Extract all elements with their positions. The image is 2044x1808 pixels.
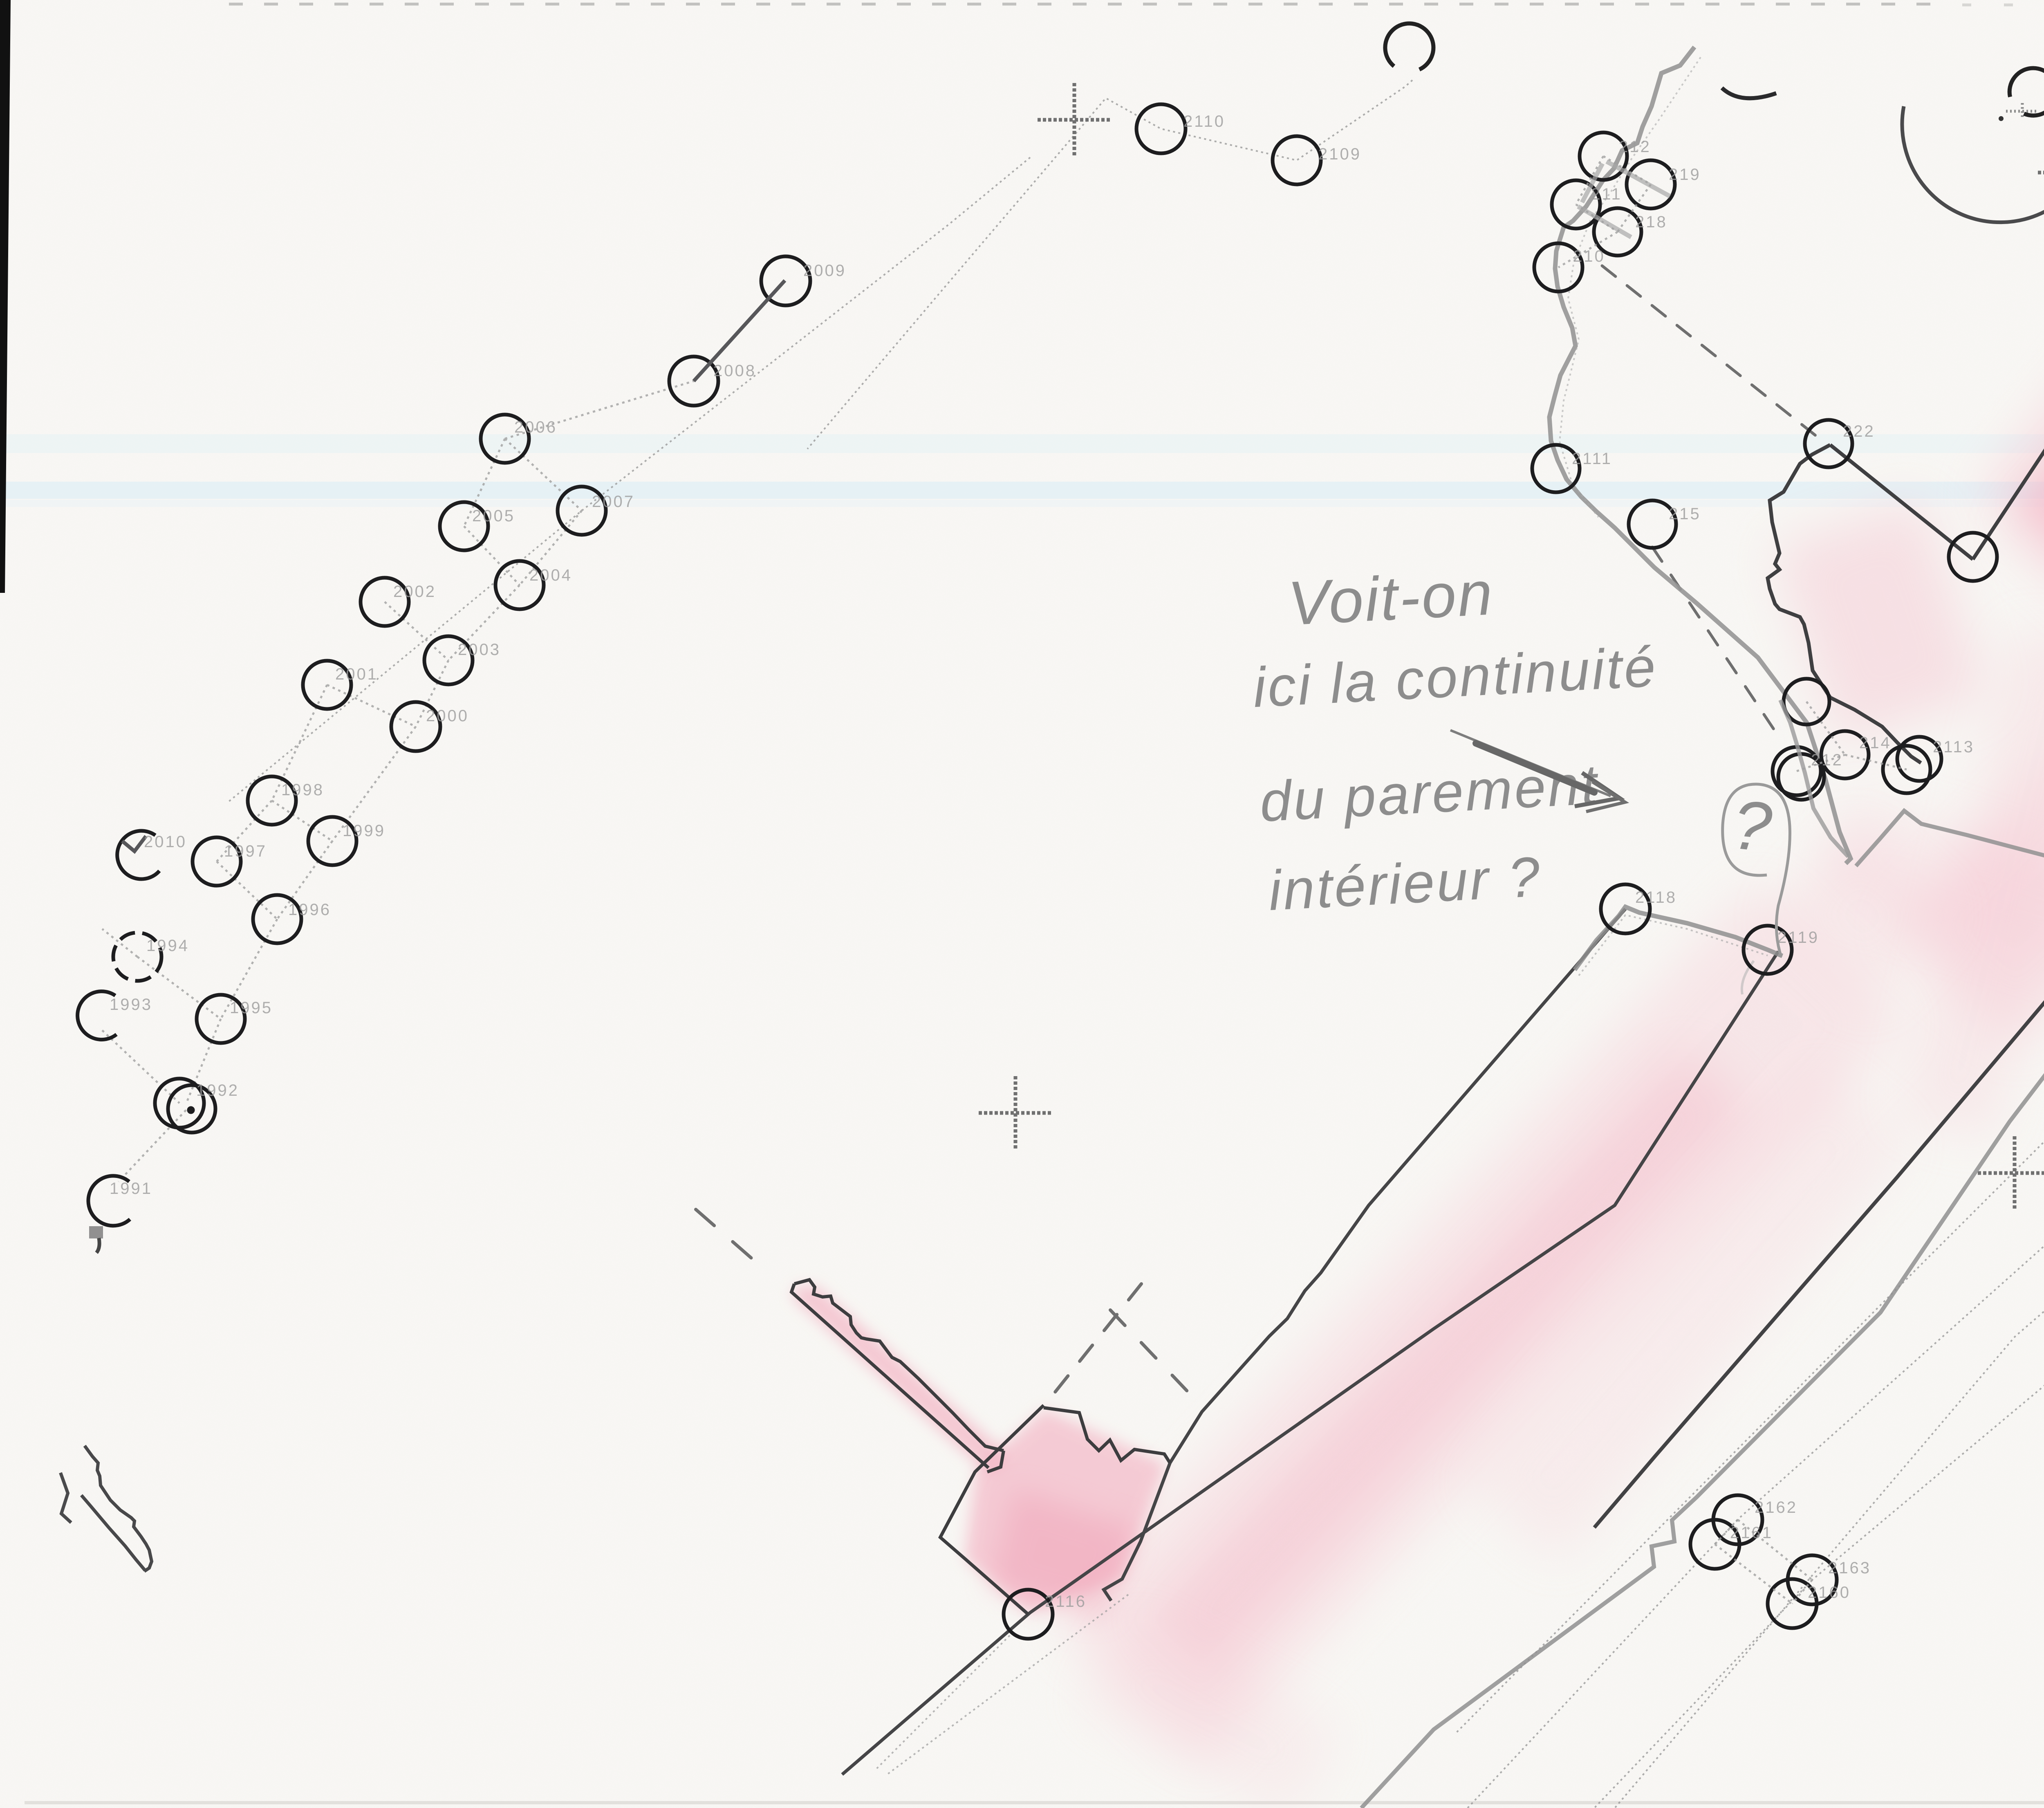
svg-text:218: 218 <box>1635 213 1667 231</box>
svg-text:2118: 2118 <box>1635 888 1677 906</box>
svg-text:2000: 2000 <box>426 707 469 725</box>
svg-text:Voit-on: Voit-on <box>1286 558 1495 638</box>
svg-text:2160: 2160 <box>1808 1584 1851 1602</box>
svg-text:1992: 1992 <box>196 1081 239 1099</box>
svg-text:2163: 2163 <box>1828 1559 1871 1577</box>
svg-text:222: 222 <box>1843 422 1875 440</box>
svg-text:215: 215 <box>1669 505 1701 523</box>
svg-text:219: 219 <box>1669 166 1701 184</box>
svg-text:2010: 2010 <box>144 833 187 851</box>
svg-text:1997: 1997 <box>224 842 267 860</box>
svg-text:2001: 2001 <box>335 665 378 683</box>
svg-text:2113: 2113 <box>1933 738 1975 756</box>
svg-text:2008: 2008 <box>713 362 756 380</box>
svg-text:2007: 2007 <box>592 493 635 511</box>
svg-text:1991: 1991 <box>110 1180 152 1198</box>
svg-text:2109: 2109 <box>1318 145 1361 163</box>
svg-text:1994: 1994 <box>146 937 189 955</box>
svg-text:2111: 2111 <box>1572 450 1612 468</box>
svg-text:211: 211 <box>1591 185 1622 203</box>
svg-text:212: 212 <box>1619 138 1651 156</box>
svg-text:1999: 1999 <box>343 822 385 840</box>
svg-text:2161: 2161 <box>1730 1524 1773 1542</box>
svg-text:2110: 2110 <box>1183 112 1225 130</box>
svg-text:1995: 1995 <box>230 999 273 1017</box>
svg-text:2004: 2004 <box>529 566 572 584</box>
svg-text:2002: 2002 <box>393 583 436 601</box>
svg-text:1998: 1998 <box>281 781 324 799</box>
svg-text:2006: 2006 <box>514 418 557 436</box>
svg-text:2009: 2009 <box>803 262 846 280</box>
svg-text:212: 212 <box>1811 751 1843 769</box>
svg-text:2119: 2119 <box>1777 929 1819 947</box>
svg-text:214: 214 <box>1859 734 1892 752</box>
svg-text:2005: 2005 <box>472 507 515 525</box>
svg-text:2003: 2003 <box>458 641 501 659</box>
svg-text:1996: 1996 <box>288 901 331 919</box>
svg-text:1993: 1993 <box>110 996 152 1014</box>
svg-text:210: 210 <box>1573 247 1605 265</box>
svg-text:2116: 2116 <box>1045 1593 1087 1611</box>
svg-text:2162: 2162 <box>1755 1498 1797 1516</box>
